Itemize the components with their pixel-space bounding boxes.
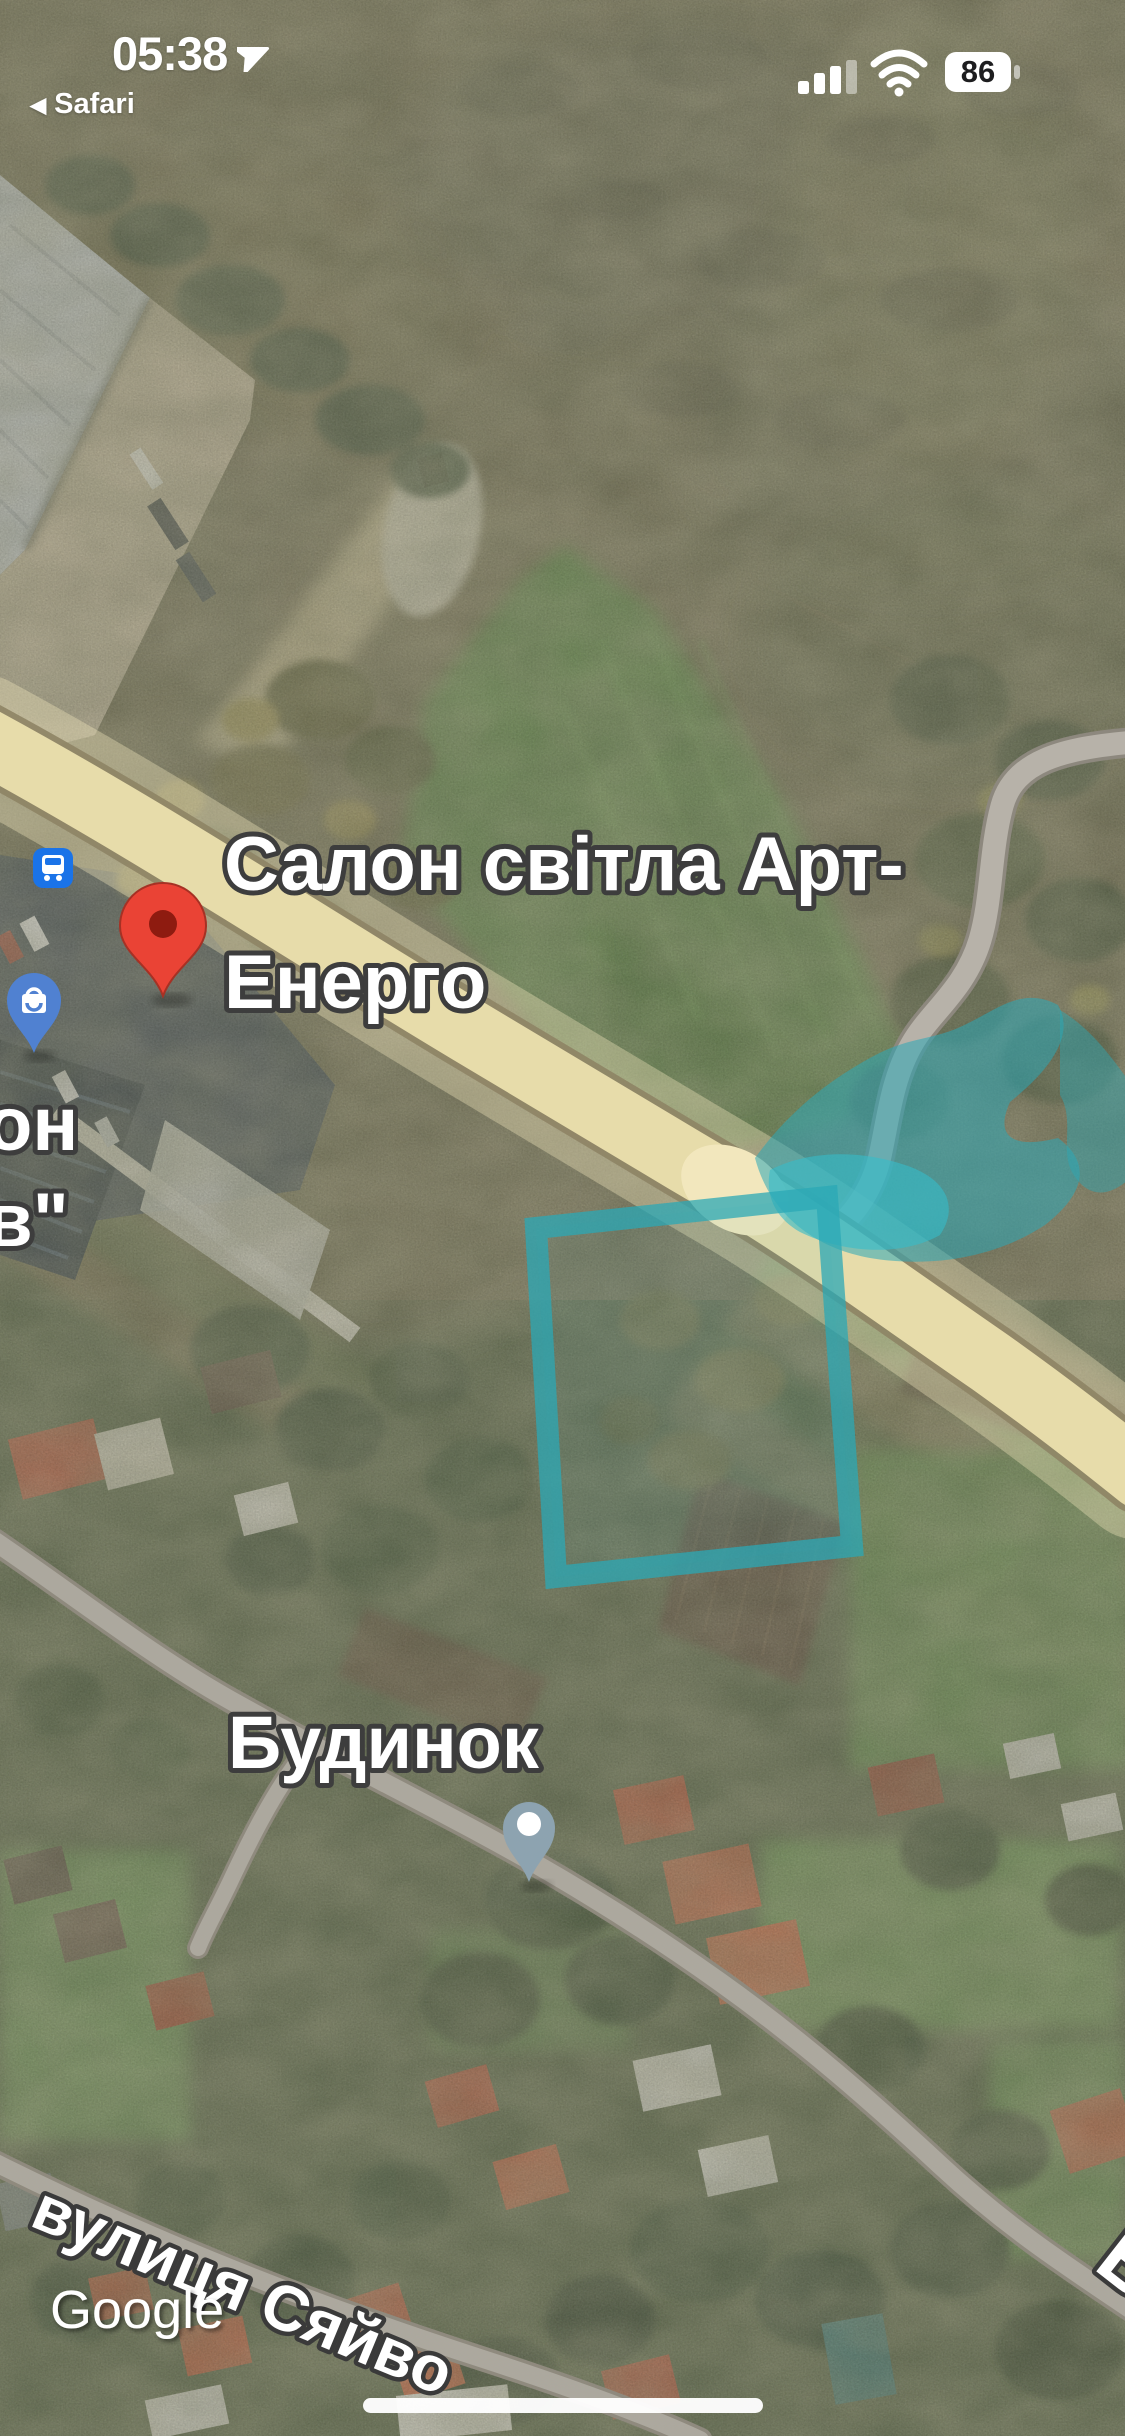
house-label[interactable]: Будинок: [228, 1701, 540, 1784]
back-chevron-icon: ◀: [30, 93, 46, 118]
back-app-label: Safari: [54, 88, 135, 121]
poi-label-partial-line2[interactable]: в": [0, 1178, 69, 1263]
wifi-icon: [874, 53, 924, 97]
status-right-icons: 86: [775, 36, 1035, 100]
status-icons-svg: 86: [775, 36, 1035, 100]
status-bar: 05:38 ◀ Safari: [0, 0, 1125, 140]
poi-label-partial-line1[interactable]: он: [0, 1082, 78, 1167]
safari-back-link[interactable]: ◀ Safari: [30, 88, 135, 121]
parcel-outline-teal[interactable]: [536, 1197, 852, 1577]
phone-screen: Салон світла Арт- Енерго он в" Будинок в…: [0, 0, 1125, 2436]
google-watermark: Google: [50, 2280, 224, 2340]
status-time: 05:38: [112, 26, 227, 81]
status-time-group: 05:38: [112, 26, 271, 81]
home-indicator[interactable]: [363, 2398, 763, 2413]
poi-label-salon-line1[interactable]: Салон світла Арт-: [224, 822, 904, 907]
satellite-map-svg: Салон світла Арт- Енерго он в" Будинок в…: [0, 0, 1125, 2436]
battery-percent: 86: [961, 54, 995, 89]
cellular-signal-icon: [798, 60, 857, 94]
location-arrow-icon: [237, 40, 271, 72]
poi-label-salon-line2[interactable]: Енерго: [224, 940, 486, 1025]
map-canvas[interactable]: Салон світла Арт- Енерго он в" Будинок в…: [0, 0, 1125, 2436]
battery-icon: 86: [945, 52, 1020, 92]
bus-stop-icon[interactable]: [33, 848, 73, 888]
